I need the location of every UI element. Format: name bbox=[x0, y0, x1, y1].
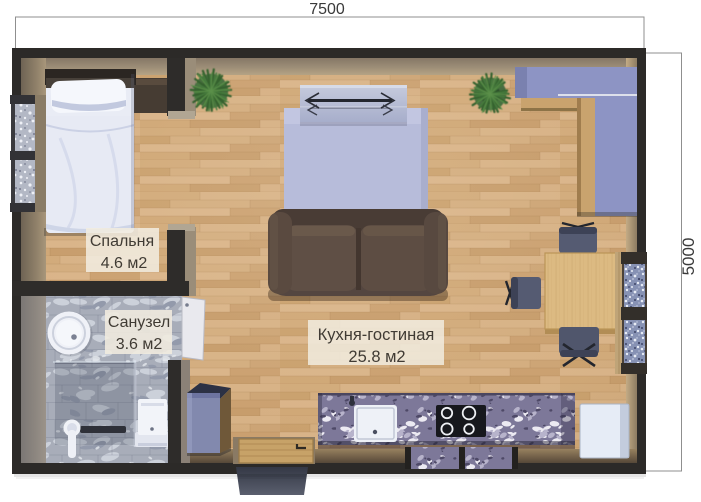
svg-text:5000: 5000 bbox=[679, 238, 698, 276]
svg-text:4.6 м2: 4.6 м2 bbox=[101, 255, 148, 272]
svg-text:Кухня-гостиная: Кухня-гостиная bbox=[318, 326, 435, 344]
svg-text:25.8 м2: 25.8 м2 bbox=[348, 348, 405, 366]
svg-text:7500: 7500 bbox=[309, 1, 345, 18]
svg-text:Санузел: Санузел bbox=[108, 314, 170, 331]
svg-text:3.6 м2: 3.6 м2 bbox=[116, 336, 163, 353]
svg-text:Спальня: Спальня bbox=[90, 233, 154, 250]
